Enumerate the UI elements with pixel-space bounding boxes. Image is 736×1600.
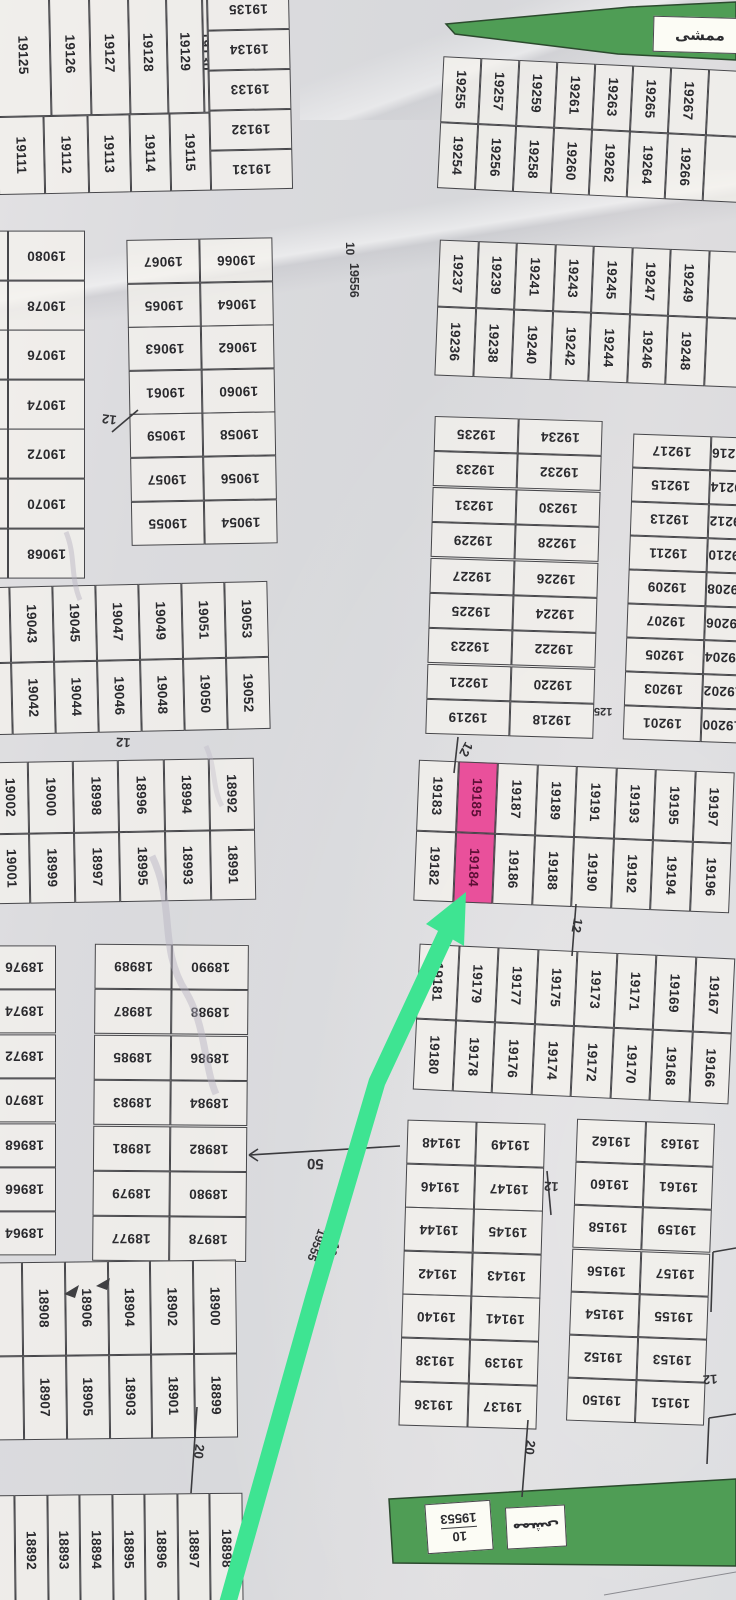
plot-cell: 18898 <box>210 1493 244 1600</box>
plot-cell: 18970 <box>0 1078 56 1122</box>
plot-cell: 19002 <box>0 762 29 835</box>
dimension-label-125: 125 <box>594 705 613 717</box>
plot-cell: 18986 <box>171 1035 248 1081</box>
plot-cell: 19241 <box>514 243 555 311</box>
plot-cell: 19204 <box>703 640 736 676</box>
plot-cell: 19072 <box>8 429 85 479</box>
street-number-label: 19556 <box>347 263 361 298</box>
plot-block-19054-19067: 1906719066190651906419063190621906119060… <box>126 238 277 546</box>
plot-block-19166-19181: 1918119179191771917519173191711916919167… <box>413 944 736 1105</box>
plot-cell: 19158 <box>573 1205 643 1251</box>
plot-cell: 19258 <box>513 126 554 194</box>
plot-cell: 18899 <box>194 1354 238 1439</box>
plot-cell: 18902 <box>150 1260 194 1355</box>
plot-block-18977-18990: 1898918990189871898818985189861898318984… <box>93 943 249 1262</box>
plot-cell: 19219 <box>425 699 510 737</box>
plot-block-19136-19149: 1914819149191461914719144191451914219143… <box>399 1120 546 1429</box>
plot-cell: 19257 <box>478 58 519 126</box>
plot-block-19254-19267: 19255192571925919261192631926519267 1925… <box>437 56 736 203</box>
plot-cell: 18974 <box>0 989 56 1033</box>
plot-cell: 19066 <box>199 238 273 283</box>
plot-cell: 18893 <box>47 1494 81 1600</box>
plot-cell: 19266 <box>665 133 706 201</box>
dimension-label-12: 12 <box>116 735 131 751</box>
plot-cell: 18968 <box>0 1123 56 1167</box>
plot-cell: 19249 <box>668 249 709 317</box>
plot-cell: 19111 <box>0 116 45 195</box>
plot-cell: 18900 <box>193 1260 237 1355</box>
plot-cell: 19154 <box>570 1291 640 1337</box>
plot-cell-highlighted: 19185 <box>456 761 498 834</box>
plot-row: 190011899918997189951899318991 <box>0 830 256 905</box>
plot-row: 19254192561925819260192621926419266 <box>437 122 736 204</box>
plot-cell: 19201 <box>623 705 702 742</box>
plot-cell: 19176 <box>492 1022 535 1095</box>
plot-cell <box>706 69 736 138</box>
plot-cell: 19173 <box>574 951 617 1028</box>
plot-cell: 19183 <box>416 760 458 833</box>
road-width-label-20: 20 <box>522 1439 539 1455</box>
plot-row: 190421904419046190481905019052 <box>0 657 271 735</box>
plot-cell: 19049 <box>138 583 183 660</box>
plot-cell: 19135 <box>207 0 290 31</box>
plot-block-18991-19002: 190021900018998189961899418992 190011899… <box>0 758 256 905</box>
plot-cell: 19152 <box>568 1334 638 1380</box>
plot-cell: 18987 <box>95 989 172 1035</box>
plot-block-18892-18898: 18892188931889418895188961889718898 <box>0 1493 244 1600</box>
plot-cell: 19131 <box>210 149 293 191</box>
plot-block-19042-19053: 190431904519047190491905119053 190421904… <box>0 581 271 735</box>
plot-cell: 19211 <box>629 535 708 572</box>
plot-cell: 19153 <box>637 1337 707 1383</box>
plot-cell: 18996 <box>118 759 164 832</box>
plot-cell: 19141 <box>470 1296 540 1342</box>
plot-cell: 19134 <box>208 29 291 71</box>
plot-row: 1890718905189031890118899 <box>0 1354 238 1441</box>
plot-cell: 19181 <box>416 944 459 1021</box>
plot-cell: 19220 <box>510 666 595 704</box>
plot-row: 19236192381924019242192441924619248 <box>434 307 736 389</box>
plot-cell: 19223 <box>427 628 512 666</box>
plot-cell: 19054 <box>204 499 278 544</box>
plot-row: 1890818906189041890218900 <box>0 1260 237 1357</box>
plot-cell: 19156 <box>571 1248 641 1294</box>
plot-cell: 19149 <box>475 1122 545 1168</box>
plot-cell: 19203 <box>624 671 703 708</box>
plot-cell: 18998 <box>73 760 119 833</box>
plot-cell: 19112 <box>43 115 89 194</box>
plot-cell: 18903 <box>109 1355 153 1440</box>
plot-cell: 18964 <box>0 1211 56 1255</box>
plot-row: 191251912619127191281912919130 <box>0 0 209 117</box>
plot-cell: 18999 <box>29 833 75 904</box>
plot-row: 1918019178191761917419172191701916819166 <box>413 1019 732 1105</box>
plot-cell <box>704 317 736 388</box>
plot-cell: 19161 <box>643 1164 713 1210</box>
plot-cell: 19145 <box>473 1209 543 1255</box>
plot-cell: 19233 <box>433 451 518 489</box>
plot-cell: 19048 <box>140 659 185 732</box>
plot-cell: 19129 <box>166 0 205 113</box>
plot-cell: 19254 <box>437 122 478 190</box>
plot-strip-18964-18976: 18976189741897218970189681896618964 <box>0 945 56 1256</box>
plot-cell: 18991 <box>210 830 256 901</box>
plot-cell: 19169 <box>653 955 696 1032</box>
plot-cell: 19045 <box>52 585 97 662</box>
plot-cell: 19265 <box>630 66 671 134</box>
plot-cell: 18983 <box>94 1080 171 1126</box>
dimension-label-12: 12 <box>456 740 476 760</box>
plot-cell: 18906 <box>65 1261 109 1356</box>
plot-cell: 19267 <box>668 67 709 135</box>
plot-cell: 19256 <box>475 124 516 192</box>
plot-cell: 19192 <box>611 839 653 911</box>
plot-cell: 19171 <box>613 953 656 1030</box>
plot-cell: 19056 <box>203 456 277 501</box>
dimension-label-50: 50 <box>307 1155 324 1173</box>
plot-block-19182-19197-highlighted: 1918319185191871918919191191931919519197… <box>413 760 734 914</box>
plot-cell: 18988 <box>171 989 248 1035</box>
plot-cell: 18966 <box>0 1167 56 1211</box>
plot-cell: 19146 <box>405 1164 475 1210</box>
plot-cell: 19263 <box>592 64 633 132</box>
dimension-label-12: 12 <box>101 411 117 428</box>
banner-arabic-label: ممشى <box>653 16 736 54</box>
plot-cell <box>0 281 8 331</box>
plot-cell: 19216 <box>710 436 736 472</box>
plot-cell: 18897 <box>177 1493 211 1600</box>
plot-cell: 19167 <box>692 957 735 1034</box>
plot-cell: 19067 <box>126 239 200 284</box>
plot-cell: 19127 <box>89 0 131 115</box>
plot-cell: 19227 <box>430 557 515 595</box>
plot-cell: 19244 <box>588 313 629 383</box>
plot-cell: 19205 <box>625 637 704 674</box>
plot-cell: 19261 <box>554 62 595 130</box>
plot-cell: 19001 <box>0 834 30 905</box>
plot-cell <box>0 429 8 479</box>
plot-cell: 19139 <box>469 1340 539 1386</box>
plot-cell: 19057 <box>130 457 204 502</box>
plot-cell: 18985 <box>94 1034 171 1080</box>
plot-cell: 19246 <box>627 314 668 384</box>
plot-cell: 18896 <box>145 1493 179 1600</box>
plot-cell: 19189 <box>535 764 577 837</box>
plot-cell: 18982 <box>170 1126 247 1172</box>
plot-cell <box>0 1356 24 1440</box>
plot-cell: 18907 <box>23 1356 67 1441</box>
plot-cell: 18908 <box>22 1262 66 1357</box>
plot-cell: 19194 <box>650 840 692 912</box>
plot-cell: 19260 <box>551 128 592 196</box>
plot-cell <box>706 250 736 319</box>
plot-cell: 19237 <box>437 240 478 308</box>
plot-cell: 19157 <box>640 1251 710 1297</box>
plot-cell: 19229 <box>431 522 516 560</box>
plot-cell: 19222 <box>511 630 596 668</box>
plot-cell: 19170 <box>610 1028 653 1101</box>
road-edge-line <box>604 1572 736 1595</box>
plot-cell: 19197 <box>692 771 734 844</box>
plot-cell: 19055 <box>131 501 205 546</box>
plot-cell: 19235 <box>434 416 519 454</box>
plot-cell: 18894 <box>80 1494 114 1600</box>
plot-cell: 18904 <box>108 1261 152 1356</box>
plot-cell <box>0 529 8 579</box>
plot-cell: 19178 <box>452 1020 495 1093</box>
plot-block-19200-19217: 1921719216192151921419213192121921119210… <box>623 434 736 745</box>
plot-cell: 18984 <box>170 1080 247 1126</box>
plot-cell: 18997 <box>74 832 120 903</box>
plot-cell: 19177 <box>495 947 538 1024</box>
plot-cell <box>703 135 736 204</box>
plot-cell: 19050 <box>183 658 228 731</box>
plot-cell: 19080 <box>8 231 85 281</box>
plot-cell: 19212 <box>708 504 736 540</box>
plot-cell: 19070 <box>8 479 85 529</box>
plot-cell: 19061 <box>129 370 203 415</box>
plot-cell: 19042 <box>11 662 56 735</box>
plot-cell: 19215 <box>631 468 710 505</box>
plot-cell-highlighted: 19184 <box>453 832 495 904</box>
plot-cell: 18995 <box>119 831 165 902</box>
plot-cell: 19232 <box>517 453 602 491</box>
plot-cell: 19059 <box>129 413 203 458</box>
plot-cell: 19140 <box>401 1294 471 1340</box>
plot-block-19236-19249: 19237192391924119243192451924719249 1923… <box>434 240 736 389</box>
plot-cell <box>0 330 8 380</box>
plot-cell: 18895 <box>112 1494 146 1600</box>
plot-cell: 19000 <box>28 761 74 834</box>
plot-cell <box>0 479 8 529</box>
plot-cell: 19180 <box>413 1019 456 1092</box>
plot-cell: 19243 <box>553 244 594 312</box>
plot-cell: 19143 <box>471 1253 541 1299</box>
plot-cell: 19113 <box>87 114 131 193</box>
dimension-label-12: 12 <box>569 917 586 934</box>
plot-cell: 19125 <box>0 0 51 117</box>
plot-cell: 19242 <box>550 311 591 381</box>
plot-cell: 19175 <box>534 949 577 1026</box>
park-number-label: 10 19553 <box>424 1500 493 1554</box>
street-width-label: 10 <box>325 1240 343 1257</box>
plot-cell: 19200 <box>701 708 736 744</box>
plot-cell: 19160 <box>574 1162 644 1208</box>
plot-cell: 19228 <box>515 524 600 562</box>
plot-cell: 18905 <box>66 1355 110 1440</box>
plot-cell: 19172 <box>571 1026 614 1099</box>
park-arabic-label: ممشى <box>505 1504 567 1549</box>
plot-cell: 19187 <box>495 763 537 836</box>
plot-cell: 19168 <box>649 1030 692 1103</box>
plot-cell: 19078 <box>8 281 85 331</box>
plot-cell: 19137 <box>467 1384 537 1430</box>
plot-cell: 19159 <box>641 1207 711 1253</box>
plot-strip-19068-19080: 19080190781907619074190721907019068 <box>0 231 85 578</box>
plot-cell: 19144 <box>404 1207 474 1253</box>
plot-row: 18892188931889418895188961889718898 <box>0 1493 244 1600</box>
plot-block-18899-18908: 1890818906189041890218900 18907189051890… <box>0 1260 238 1441</box>
dimension-label-12: 12 <box>544 1179 559 1195</box>
plot-cell: 19207 <box>626 603 705 640</box>
plot-cell: 19051 <box>181 582 226 659</box>
plot-column: 1913519134191331913219131 <box>207 0 293 191</box>
plot-cell: 19225 <box>428 592 513 630</box>
plot-cell: 18972 <box>0 1034 56 1078</box>
plot-cell: 19231 <box>432 486 517 524</box>
plot-cell: 19240 <box>511 310 552 380</box>
plot-row: 1911119112191131911419115 <box>0 113 211 195</box>
plot-cell: 18990 <box>171 944 248 990</box>
plot-block-19218-19235: 1923519234192331923219231192301922919228… <box>425 416 602 739</box>
plot-cell: 19063 <box>128 326 202 371</box>
plot-cell: 19114 <box>129 113 171 192</box>
plot-cell: 19155 <box>638 1294 708 1340</box>
plot-cell: 19202 <box>702 674 736 710</box>
plot-cell: 19064 <box>200 281 274 326</box>
plot-cell: 19166 <box>689 1032 732 1105</box>
plot-cell: 19247 <box>630 247 671 315</box>
plot-cell: 19043 <box>9 586 54 663</box>
plot-cell: 19208 <box>705 572 736 608</box>
plot-cell: 19224 <box>512 595 597 633</box>
scanned-plot-map: 191251912619127191281912919130 191111911… <box>0 0 736 1600</box>
plot-cell: 19148 <box>406 1120 476 1166</box>
road-width-label-20: 20 <box>191 1443 208 1459</box>
plot-cell: 19065 <box>127 283 201 328</box>
plot-cell: 19218 <box>509 701 594 739</box>
plot-cell: 18980 <box>170 1171 247 1217</box>
plot-row: 190021900018998189961899418992 <box>0 758 255 835</box>
plot-cell: 19191 <box>574 766 616 839</box>
park-plot-number: 19553 <box>440 1509 477 1530</box>
plot-row: 1918219184191861918819190191921919419196 <box>413 831 732 914</box>
plot-block-19150-19163: 1916219163191601916119158191591915619157… <box>567 1119 715 1426</box>
plot-cell: 19136 <box>399 1381 469 1427</box>
plot-cell: 19214 <box>709 470 736 506</box>
plot-cell: 19133 <box>209 69 292 111</box>
plot-cell: 19221 <box>426 663 511 701</box>
plot-cell: 19245 <box>591 246 632 314</box>
plot-cell: 18992 <box>209 758 255 831</box>
plot-cell: 19188 <box>532 835 574 907</box>
plot-cell: 19126 <box>49 0 92 116</box>
plot-cell: 19217 <box>632 434 711 471</box>
plot-cell: 19068 <box>8 529 85 579</box>
street-number-label: 19555 <box>304 1227 329 1263</box>
plot-cell: 19076 <box>8 330 85 380</box>
plot-cell <box>0 231 8 281</box>
plot-cell: 19163 <box>644 1121 714 1167</box>
plot-row: 1918319185191871918919191191931919519197 <box>416 760 735 844</box>
plot-cell: 19150 <box>567 1378 637 1424</box>
plot-cell: 19162 <box>576 1119 646 1165</box>
plot-cell: 18993 <box>165 831 211 902</box>
plot-cell: 19230 <box>516 489 601 527</box>
plot-cell: 19238 <box>473 308 514 378</box>
plot-cell: 19174 <box>531 1024 574 1097</box>
plot-cell: 19058 <box>202 412 276 457</box>
plot-cell: 18989 <box>95 943 172 989</box>
plot-cell: 18981 <box>93 1125 170 1171</box>
street-width-label: 10 <box>343 242 357 255</box>
plot-cell: 19132 <box>209 109 292 151</box>
plot-cell: 18976 <box>0 945 56 989</box>
plot-cell: 19074 <box>8 380 85 430</box>
plot-cell: 19236 <box>434 307 475 377</box>
plot-cell: 19239 <box>476 241 517 309</box>
plot-cell: 19046 <box>97 660 142 733</box>
plot-cell: 18978 <box>169 1216 246 1262</box>
plot-cell: 19062 <box>201 325 275 370</box>
plot-cell: 19142 <box>402 1251 472 1297</box>
plot-cell: 19115 <box>169 113 211 192</box>
plot-cell: 19213 <box>630 502 709 539</box>
plot-cell: 19226 <box>513 560 598 598</box>
plot-cell: 18892 <box>14 1495 48 1600</box>
plot-cell: 19206 <box>704 606 736 642</box>
plot-cell: 18994 <box>163 759 209 832</box>
plot-cell: 19047 <box>95 584 140 661</box>
plot-cell: 19052 <box>226 657 271 730</box>
plot-cell: 19060 <box>202 369 276 414</box>
plot-cell: 19262 <box>589 130 630 198</box>
plot-cell: 19234 <box>518 418 603 456</box>
plot-cell: 18979 <box>93 1170 170 1216</box>
plot-cell <box>0 1262 23 1356</box>
plot-cell: 18977 <box>93 1216 170 1262</box>
dimension-label-12: 12 <box>702 1372 717 1388</box>
plot-cell: 19195 <box>653 769 695 842</box>
plot-cell: 19182 <box>413 831 455 903</box>
plot-cell: 19044 <box>54 661 99 734</box>
plot-cell: 19186 <box>492 834 534 906</box>
plot-cell: 19259 <box>516 60 557 128</box>
plot-cell: 19196 <box>690 842 732 914</box>
plot-row: 190431904519047190491905119053 <box>0 581 269 663</box>
plot-cell: 19248 <box>665 316 706 386</box>
plot-cell: 18901 <box>151 1354 195 1439</box>
plot-cell: 19264 <box>627 131 668 199</box>
park-width-label: 10 <box>452 1527 468 1544</box>
plot-cell <box>0 1495 16 1600</box>
plot-cell: 19255 <box>440 56 481 124</box>
plot-cell: 19053 <box>224 581 269 658</box>
plot-block-19111-19135: 191251912619127191281912919130 191111911… <box>0 0 293 195</box>
plot-cell: 19147 <box>474 1166 544 1212</box>
plot-cell <box>0 380 8 430</box>
plot-cell: 19179 <box>456 945 499 1022</box>
plot-cell: 19151 <box>635 1380 705 1426</box>
plot-cell: 19193 <box>613 768 655 841</box>
plot-cell: 19190 <box>571 837 613 909</box>
plot-cell: 19210 <box>707 538 736 574</box>
plot-cell: 19209 <box>627 569 706 606</box>
plot-cell: 19128 <box>128 0 169 114</box>
plot-cell: 19138 <box>400 1338 470 1384</box>
